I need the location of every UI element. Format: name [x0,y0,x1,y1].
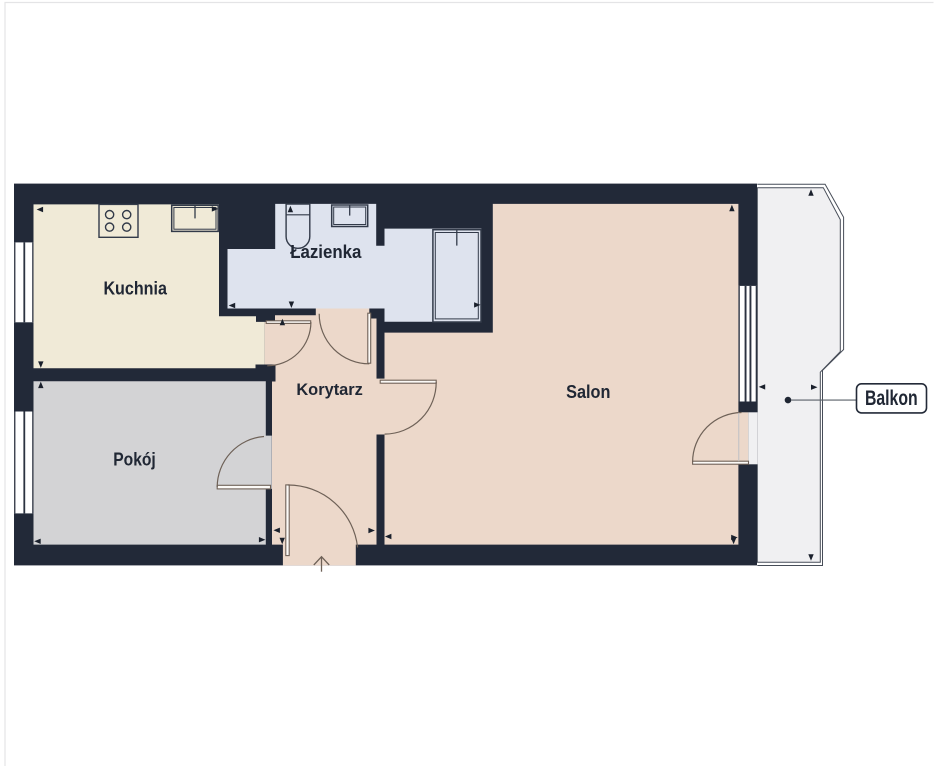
svg-text:Salon: Salon [566,382,610,402]
svg-text:Balkon: Balkon [865,387,918,410]
svg-text:Łazienka: Łazienka [290,242,362,262]
svg-text:Pokój: Pokój [113,449,156,469]
svg-text:Korytarz: Korytarz [296,380,363,399]
svg-text:Kuchnia: Kuchnia [103,279,167,299]
